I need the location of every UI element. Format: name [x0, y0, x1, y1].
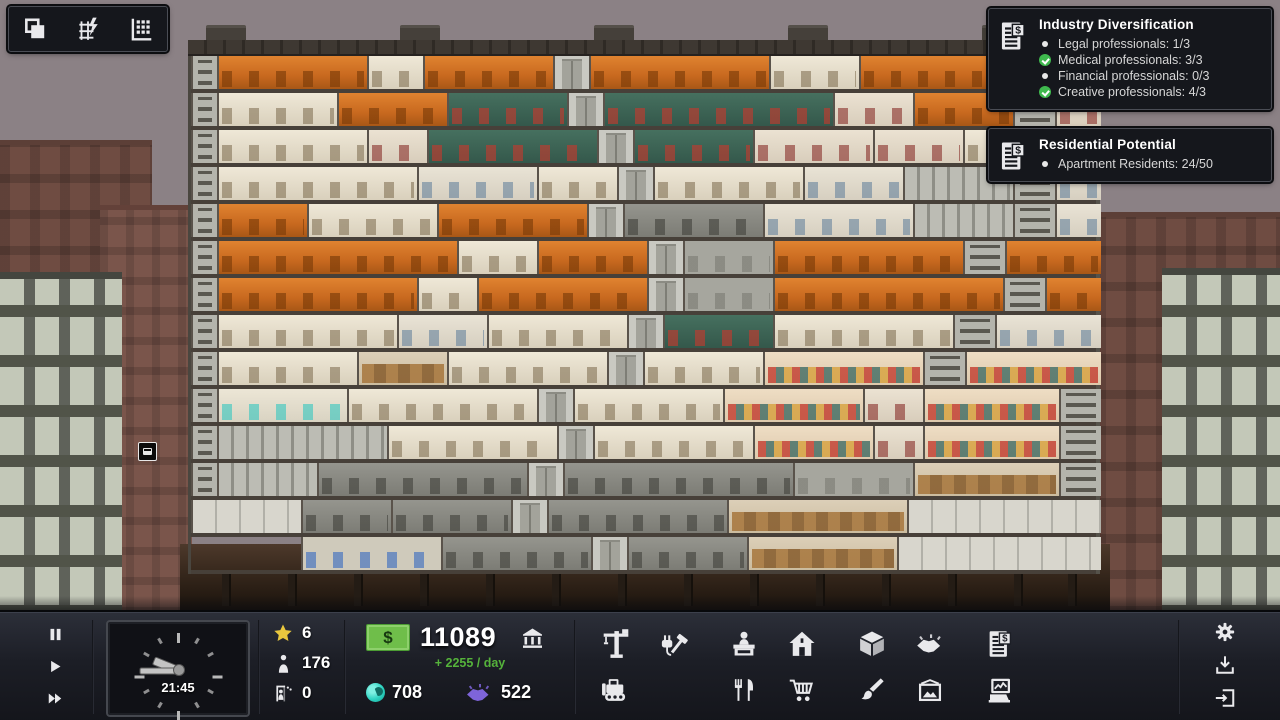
room-lockers[interactable]: [217, 426, 387, 459]
notification-item: Legal professionals: 1/3: [1039, 36, 1209, 52]
check-icon: [1039, 54, 1051, 66]
bullet-icon: [1039, 158, 1051, 170]
room-market[interactable]: [753, 426, 873, 459]
vacancy-stat: 0: [272, 682, 330, 704]
svg-text:$: $: [1015, 146, 1021, 157]
room-diner[interactable]: [427, 130, 597, 163]
picture-frame-icon: [915, 676, 945, 704]
room-diner[interactable]: [633, 130, 753, 163]
floor: [191, 315, 1096, 352]
clock-tick: [194, 638, 200, 645]
room-elevator[interactable]: [591, 537, 627, 570]
room-shaft[interactable]: [1013, 204, 1055, 237]
room-studio[interactable]: [417, 278, 477, 311]
room-studio[interactable]: [347, 389, 537, 422]
room-apartment[interactable]: [397, 315, 487, 348]
notification-item: Apartment Residents: 24/50: [1039, 156, 1213, 172]
ground-shadow: [0, 596, 1280, 610]
room-elevator[interactable]: [557, 426, 593, 459]
room-elevator[interactable]: [647, 278, 683, 311]
room-studio[interactable]: [367, 56, 423, 89]
plug-hammer-icon: [659, 630, 689, 658]
room-office[interactable]: [217, 241, 457, 274]
notification-item: Creative professionals: 4/3: [1039, 84, 1209, 100]
gear-icon: [1214, 621, 1236, 643]
play-icon: [48, 659, 63, 674]
notification-item: Medical professionals: 3/3: [1039, 52, 1209, 68]
room-office[interactable]: [337, 93, 447, 126]
room-void: [191, 537, 301, 570]
room-elevator[interactable]: [527, 463, 563, 496]
room-gray[interactable]: [683, 241, 773, 274]
room-market[interactable]: [763, 352, 923, 385]
room-office[interactable]: [217, 278, 417, 311]
notification-residential-potential[interactable]: $ Residential Potential Apartment Reside…: [988, 128, 1272, 182]
bus-stop-sign-icon: [138, 442, 157, 461]
pause-icon: [48, 627, 63, 642]
construction-tools: [596, 612, 694, 720]
room-medical[interactable]: [863, 389, 923, 422]
floor: [191, 93, 1096, 130]
save-button[interactable]: [1204, 653, 1246, 677]
room-plate[interactable]: [907, 500, 1101, 533]
room-shaft[interactable]: [191, 93, 217, 126]
room-office[interactable]: [589, 56, 769, 89]
room-office[interactable]: [859, 56, 1009, 89]
influence-value: 708: [392, 682, 422, 703]
room-shaft[interactable]: [191, 130, 217, 163]
bullet-icon: [1039, 70, 1051, 82]
money-report-icon: $: [987, 629, 1013, 659]
roof-vent: [788, 25, 828, 40]
bulldozer-button[interactable]: [596, 674, 636, 706]
floor: [191, 537, 1096, 574]
room-shaft[interactable]: [191, 389, 217, 422]
deals-button[interactable]: [910, 628, 950, 660]
room-utility[interactable]: [317, 463, 527, 496]
clock-tick: [157, 638, 163, 645]
finance-block: $ 11089 + 2255 / day 708: [366, 622, 556, 703]
food-service-button[interactable]: [724, 674, 764, 706]
contracts-button[interactable]: $: [980, 628, 1020, 660]
house-icon: [787, 629, 817, 659]
room-medical[interactable]: [873, 130, 963, 163]
room-office[interactable]: [437, 204, 587, 237]
layers-button[interactable]: [14, 12, 56, 46]
office-tenants-button[interactable]: [724, 628, 764, 660]
room-laundry[interactable]: [217, 389, 347, 422]
notification-industry-diversification[interactable]: $ Industry Diversification Legal profess…: [988, 8, 1272, 110]
layers-icon: [22, 16, 48, 42]
room-elevator[interactable]: [607, 352, 643, 385]
game-viewport: $ Industry Diversification Legal profess…: [0, 0, 1280, 720]
building-stats-button[interactable]: [120, 12, 162, 46]
room-apartment[interactable]: [803, 167, 903, 200]
report-tools: $: [980, 612, 1020, 720]
clock-tick: [194, 702, 200, 709]
room-diner[interactable]: [447, 93, 567, 126]
room-studio[interactable]: [653, 167, 803, 200]
floor: [191, 56, 1096, 93]
room-office[interactable]: [217, 56, 367, 89]
floor: [191, 352, 1096, 389]
room-diner[interactable]: [663, 315, 773, 348]
roof-vents: [188, 28, 1100, 40]
room-shaft[interactable]: [963, 241, 1005, 274]
residential-button[interactable]: [782, 628, 822, 660]
room-studio[interactable]: [217, 93, 337, 126]
room-office[interactable]: [773, 241, 963, 274]
floor: [191, 130, 1096, 167]
room-utility[interactable]: [627, 537, 747, 570]
balance-value: 11089: [420, 622, 496, 653]
room-shaft[interactable]: [191, 167, 217, 200]
reports-button[interactable]: [980, 674, 1020, 706]
floor: [191, 389, 1096, 426]
fork-knife-icon: [731, 675, 757, 705]
room-gray[interactable]: [683, 278, 773, 311]
room-office[interactable]: [773, 278, 1003, 311]
room-utility[interactable]: [441, 537, 591, 570]
room-medical[interactable]: [367, 130, 427, 163]
room-market[interactable]: [965, 352, 1101, 385]
decorate-button[interactable]: [852, 674, 892, 706]
room-apartment[interactable]: [763, 204, 913, 237]
room-elevator[interactable]: [617, 167, 653, 200]
room-shaft[interactable]: [953, 315, 995, 348]
clock-time: 21:45: [108, 680, 248, 695]
room-shaft[interactable]: [191, 426, 217, 459]
room-elevator[interactable]: [587, 204, 623, 237]
shopping-cart-icon: [787, 676, 817, 704]
power-grid-icon: [75, 16, 101, 42]
bank-icon[interactable]: [520, 626, 545, 650]
background-building: [1162, 268, 1280, 617]
overlay-toolbar: [8, 6, 168, 52]
favors-handshake-icon: [464, 683, 494, 703]
svg-text:$: $: [1002, 634, 1008, 645]
fast-forward-button[interactable]: [34, 688, 76, 709]
room-elevator[interactable]: [537, 389, 573, 422]
settings-button[interactable]: [1204, 620, 1246, 644]
play-button[interactable]: [34, 656, 76, 677]
room-studio[interactable]: [643, 352, 763, 385]
building-stats-icon: [128, 16, 154, 42]
clock-tick: [177, 633, 180, 643]
services-button[interactable]: [852, 628, 892, 660]
crane-icon: [601, 628, 631, 660]
room-utility[interactable]: [301, 500, 391, 533]
favors-value: 522: [501, 682, 531, 703]
clock-tick: [212, 676, 222, 679]
artwork-button[interactable]: [910, 674, 950, 706]
retail-button[interactable]: [782, 674, 822, 706]
bottom-toolbar: 21:45 6 176: [0, 610, 1280, 720]
room-office[interactable]: [1005, 241, 1101, 274]
room-storage[interactable]: [747, 537, 897, 570]
floor: [191, 426, 1096, 463]
room-utility[interactable]: [623, 204, 763, 237]
clock-tick: [134, 676, 144, 679]
room-apartment[interactable]: [995, 315, 1101, 348]
pause-button[interactable]: [34, 624, 76, 645]
room-studio[interactable]: [217, 167, 417, 200]
financial-report-icon: $: [999, 17, 1029, 100]
clock-tick: [207, 652, 214, 658]
game-clock[interactable]: 21:45: [106, 620, 250, 717]
room-apartment[interactable]: [417, 167, 537, 200]
roof-parapet: [188, 40, 1100, 56]
room-studio[interactable]: [593, 426, 753, 459]
bulldozer-icon: [599, 676, 633, 704]
room-shaft[interactable]: [191, 315, 217, 348]
room-storage[interactable]: [913, 463, 1059, 496]
floor: [191, 278, 1096, 315]
room-studio[interactable]: [217, 130, 367, 163]
room-elevator[interactable]: [567, 93, 603, 126]
bullet-icon: [1039, 38, 1051, 50]
utilities-repair-button[interactable]: [654, 628, 694, 660]
power-grid-button[interactable]: [67, 12, 109, 46]
vacancy-icon: [272, 684, 294, 703]
room-studio[interactable]: [307, 204, 437, 237]
room-medical[interactable]: [833, 93, 913, 126]
population-stat: 176: [272, 652, 330, 674]
room-shaft[interactable]: [1059, 463, 1101, 496]
room-elevator[interactable]: [553, 56, 589, 89]
room-market[interactable]: [723, 389, 863, 422]
check-icon: [1039, 86, 1051, 98]
room-studio[interactable]: [537, 167, 617, 200]
services-tools: [852, 612, 950, 720]
room-storage[interactable]: [357, 352, 447, 385]
exit-button[interactable]: [1204, 686, 1246, 710]
room-storage[interactable]: [727, 500, 907, 533]
tower-stats: 6 176 0: [272, 622, 330, 704]
star-icon: [272, 623, 294, 643]
notification-title: Industry Diversification: [1039, 17, 1209, 32]
room-medical[interactable]: [753, 130, 873, 163]
room-elevator[interactable]: [597, 130, 633, 163]
room-lockers[interactable]: [913, 204, 1013, 237]
svg-text:$: $: [1015, 26, 1021, 37]
computer-chart-icon: [985, 675, 1015, 705]
income-per-day: + 2255 / day: [410, 656, 530, 670]
box-icon: [857, 629, 887, 659]
room-studio[interactable]: [217, 315, 397, 348]
room-studio[interactable]: [769, 56, 859, 89]
room-studio[interactable]: [217, 352, 357, 385]
room-market[interactable]: [923, 426, 1059, 459]
room-shaft[interactable]: [191, 204, 217, 237]
speed-controls: [34, 624, 76, 709]
fast-forward-icon: [46, 691, 64, 706]
room-utility[interactable]: [563, 463, 793, 496]
room-basement[interactable]: [301, 537, 441, 570]
room-studio[interactable]: [457, 241, 537, 274]
room-office[interactable]: [537, 241, 647, 274]
room-shaft[interactable]: [191, 56, 217, 89]
paintbrush-icon: [858, 676, 886, 704]
notification-title: Residential Potential: [1039, 137, 1213, 152]
room-shaft[interactable]: [923, 352, 965, 385]
person-icon: [272, 654, 294, 673]
highrise-building: [188, 28, 1100, 574]
room-studio[interactable]: [773, 315, 953, 348]
room-shaft[interactable]: [191, 278, 217, 311]
room-studio[interactable]: [387, 426, 557, 459]
room-office[interactable]: [1045, 278, 1101, 311]
clock-tick: [143, 652, 150, 658]
room-studio[interactable]: [573, 389, 723, 422]
financial-report-icon: $: [999, 137, 1029, 172]
money-bill-icon: $: [366, 624, 410, 651]
room-office[interactable]: [423, 56, 553, 89]
room-plate[interactable]: [897, 537, 1101, 570]
roof-vent: [206, 25, 246, 40]
room-shaft[interactable]: [191, 241, 217, 274]
room-shaft[interactable]: [191, 352, 217, 385]
room-studio[interactable]: [447, 352, 607, 385]
room-office[interactable]: [477, 278, 647, 311]
room-elevator[interactable]: [627, 315, 663, 348]
room-studio[interactable]: [487, 315, 627, 348]
roof-vent: [594, 25, 634, 40]
floor: [191, 204, 1096, 241]
roof-vent: [400, 25, 440, 40]
clock-center-pin: [173, 664, 185, 676]
room-shaft[interactable]: [1059, 426, 1101, 459]
clock-tick: [157, 702, 163, 709]
exit-door-icon: [1214, 687, 1236, 709]
floor: [191, 500, 1096, 537]
room-utility[interactable]: [391, 500, 511, 533]
background-building: [0, 272, 122, 617]
build-crane-button[interactable]: [596, 628, 636, 660]
building-floors: [188, 56, 1100, 574]
room-office[interactable]: [217, 204, 307, 237]
room-shaft[interactable]: [1003, 278, 1045, 311]
floor: [191, 167, 1096, 204]
room-market[interactable]: [923, 389, 1059, 422]
notification-item: Financial professionals: 0/3: [1039, 68, 1209, 84]
tenant-tools: [724, 612, 822, 720]
system-buttons: [1204, 620, 1246, 710]
room-shaft[interactable]: [191, 463, 217, 496]
receptionist-icon: [729, 629, 759, 659]
room-elevator[interactable]: [511, 500, 547, 533]
room-utility[interactable]: [547, 500, 727, 533]
clock-tick: [177, 711, 180, 720]
floor: [191, 463, 1096, 500]
handshake-icon: [914, 632, 946, 656]
prestige-stat: 6: [272, 622, 330, 644]
room-apartment[interactable]: [1055, 204, 1101, 237]
floor: [191, 241, 1096, 278]
influence-icon: [366, 683, 385, 702]
room-shaft[interactable]: [1059, 389, 1101, 422]
room-plate[interactable]: [191, 500, 301, 533]
room-elevator[interactable]: [647, 241, 683, 274]
room-diner[interactable]: [603, 93, 833, 126]
clock-face: 21:45: [108, 622, 248, 715]
room-lockers[interactable]: [217, 463, 317, 496]
room-medical[interactable]: [873, 426, 923, 459]
room-gray[interactable]: [793, 463, 913, 496]
save-download-icon: [1214, 654, 1236, 676]
